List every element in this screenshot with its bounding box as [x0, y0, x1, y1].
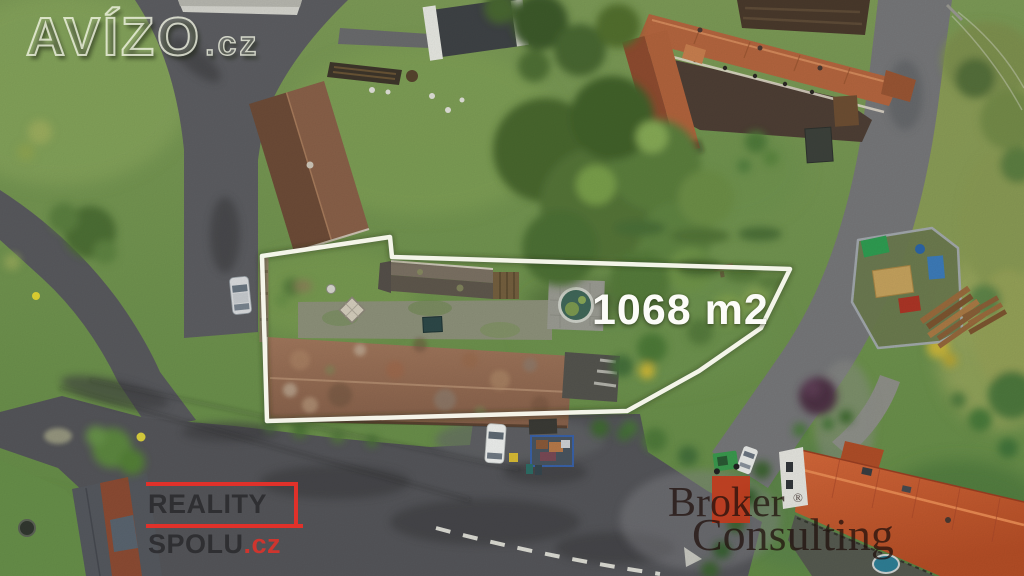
avizo-logo-text: AVÍZO: [26, 10, 202, 64]
reality-spolu-line1: REALITY: [148, 491, 267, 518]
reality-spolu-top-bar: [146, 482, 297, 486]
reality-spolu-line2: SPOLU.cz: [148, 531, 281, 558]
broker-consulting-watermark: Broker ® Consulting: [660, 468, 940, 568]
reality-spolu-right-bar: [294, 482, 298, 528]
avizo-logo-tld: .cz: [205, 27, 259, 61]
avizo-watermark: AVÍZO.cz: [26, 10, 259, 64]
aerial-listing-photo: AVÍZO.cz REALITY SPOLU.cz Broker ® Consu…: [0, 0, 1024, 576]
registered-mark: ®: [793, 490, 803, 506]
reality-spolu-mid-bar: [146, 524, 303, 528]
plot-area-label: 1068 m2: [592, 286, 769, 335]
reality-spolu-watermark: REALITY SPOLU.cz: [146, 482, 316, 568]
reality-spolu-tld: .cz: [244, 529, 282, 559]
broker-consulting-word2: Consulting: [692, 512, 894, 558]
